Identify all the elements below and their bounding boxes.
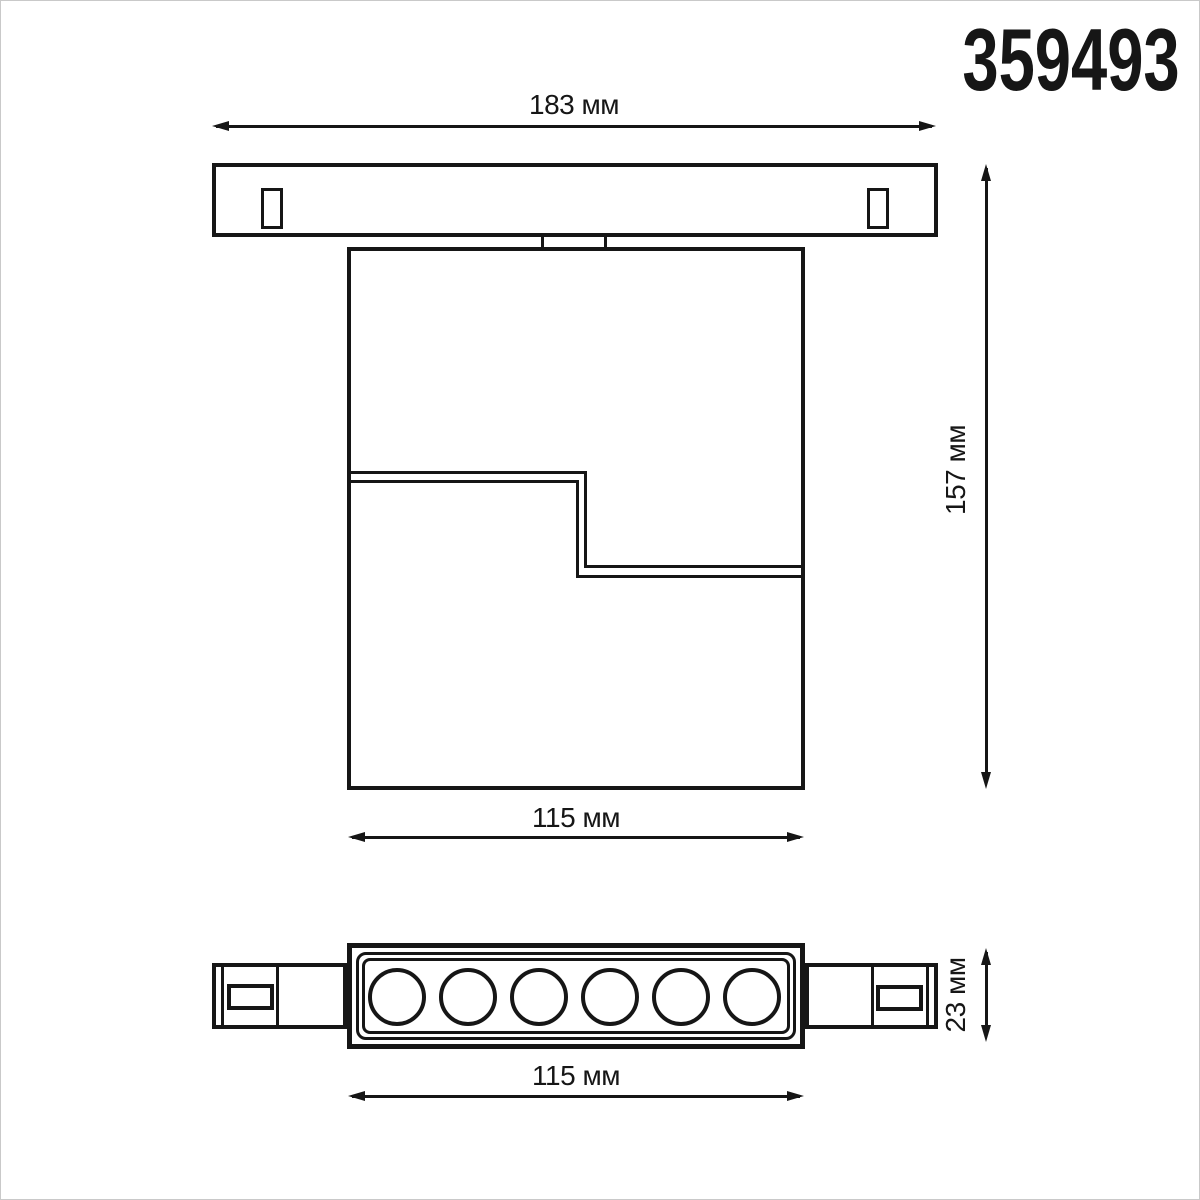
adapter-stub-left-line [541, 235, 544, 248]
swivel-seam-lower-line-1 [584, 565, 801, 568]
dim-line-body-width [352, 836, 800, 839]
arrowhead-up-icon [981, 948, 991, 965]
led-lens-3 [510, 968, 568, 1026]
arrowhead-left-icon [348, 832, 365, 842]
adapter-stub-right-line [604, 235, 607, 248]
led-lens-4 [581, 968, 639, 1026]
arm-right-clip [876, 985, 923, 1011]
track-profile [212, 163, 938, 237]
track-slot-left [261, 188, 283, 229]
led-lens-1 [368, 968, 426, 1026]
arrowhead-up-icon [981, 164, 991, 181]
arrowhead-right-icon [787, 1091, 804, 1101]
swivel-seam-vertical-line-2 [584, 471, 587, 568]
led-lens-array [347, 943, 805, 1049]
arm-left-divider-line [276, 967, 279, 1025]
led-lens-6 [723, 968, 781, 1026]
arm-left-inner-line [221, 967, 224, 1025]
led-lens-2 [439, 968, 497, 1026]
technical-drawing-canvas: 359493 183 мм 157 мм 115 мм [0, 0, 1200, 1200]
arrowhead-down-icon [981, 772, 991, 789]
arm-right-divider-line [871, 967, 874, 1025]
dim-line-track-length [216, 125, 932, 128]
dim-label-head-height: 23 мм [941, 950, 971, 1040]
dim-line-head-width [352, 1095, 800, 1098]
arrowhead-right-icon [919, 121, 936, 131]
arrowhead-left-icon [212, 121, 229, 131]
dim-label-body-width: 115 мм [532, 804, 620, 832]
part-number: 359493 [963, 16, 1180, 104]
arrowhead-left-icon [348, 1091, 365, 1101]
swivel-seam-upper-line-2 [349, 480, 579, 483]
dim-label-track-length: 183 мм [529, 91, 619, 119]
swivel-seam-lower-line-2 [576, 575, 801, 578]
dim-label-overall-height: 157 мм [941, 425, 971, 515]
dim-label-head-width: 115 мм [532, 1062, 620, 1090]
swivel-seam-vertical-line-1 [576, 480, 579, 578]
swivel-seam-upper-line-1 [349, 471, 587, 474]
dim-line-overall-height [985, 168, 988, 776]
arm-right-inner-line [926, 967, 929, 1025]
arrowhead-right-icon [787, 832, 804, 842]
arm-left-clip [227, 984, 274, 1010]
led-lens-5 [652, 968, 710, 1026]
track-slot-right [867, 188, 889, 229]
arrowhead-down-icon [981, 1025, 991, 1042]
